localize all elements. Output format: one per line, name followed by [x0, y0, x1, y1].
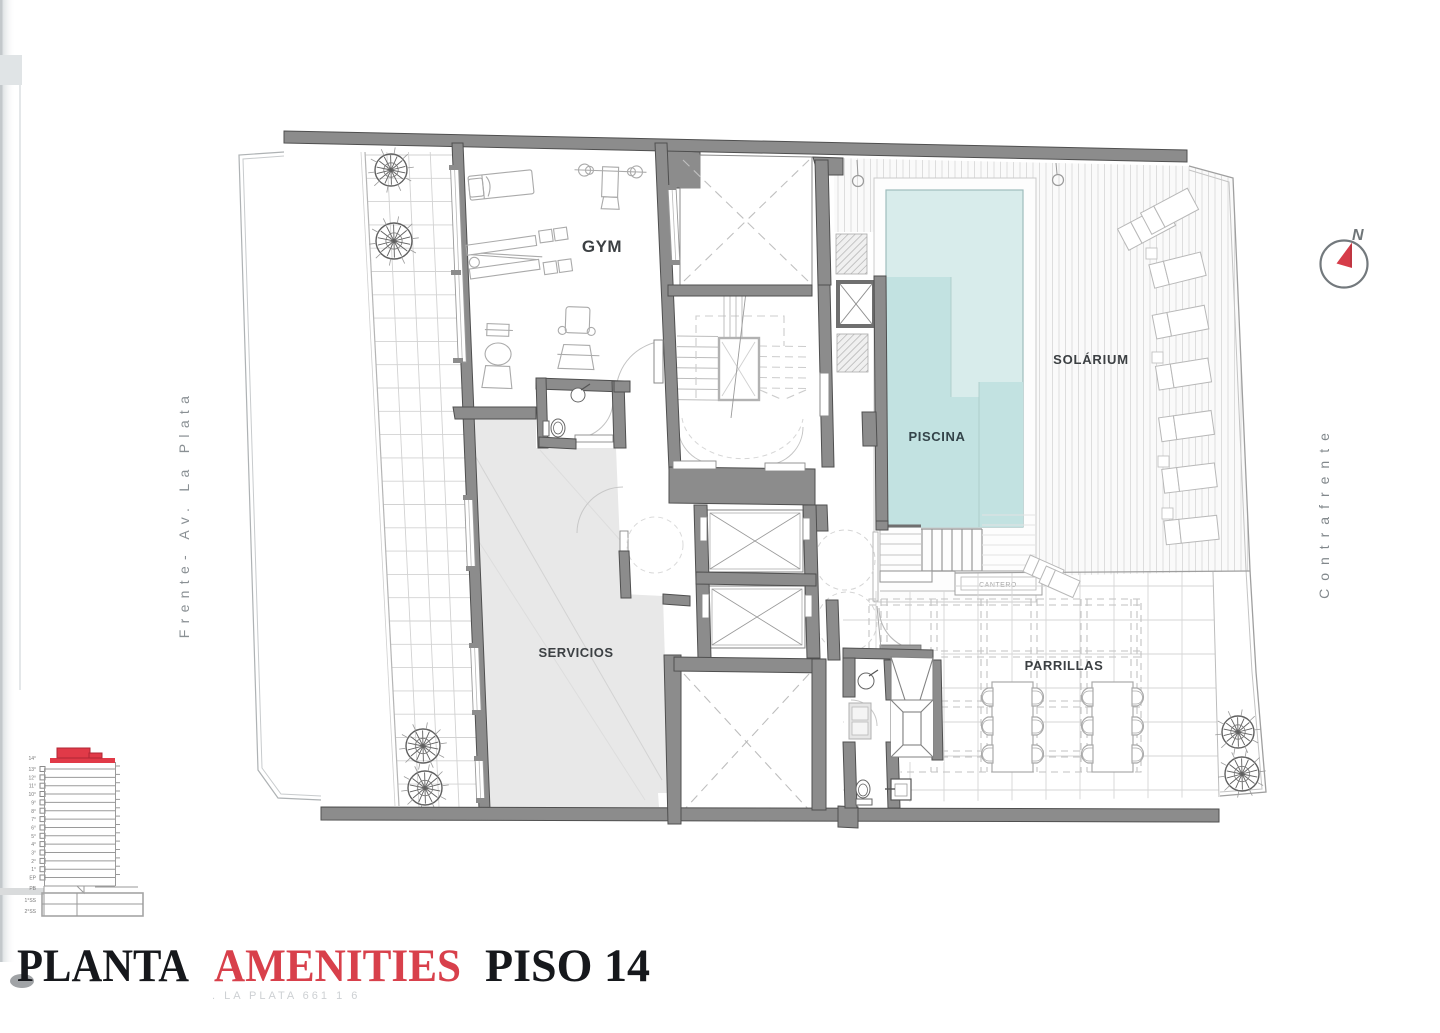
svg-text:2°SS: 2°SS [25, 909, 37, 915]
svg-text:EP: EP [29, 876, 36, 882]
svg-text:4°: 4° [31, 842, 36, 848]
svg-text:N: N [1352, 227, 1364, 244]
svg-text:12°: 12° [28, 775, 36, 781]
svg-text:10°: 10° [28, 792, 36, 798]
svg-text:PISCINA: PISCINA [909, 429, 966, 444]
svg-text:2°: 2° [31, 859, 36, 865]
svg-text:PLANTA: PLANTA [17, 940, 189, 992]
svg-text:SOLÁRIUM: SOLÁRIUM [1053, 352, 1129, 367]
svg-text:9°: 9° [31, 800, 36, 806]
svg-text:SERVICIOS: SERVICIOS [538, 645, 613, 660]
svg-text:PARRILLAS: PARRILLAS [1025, 658, 1104, 673]
svg-text:AMENITIES: AMENITIES [214, 940, 461, 992]
svg-text:14°: 14° [28, 756, 36, 762]
svg-text:GYM: GYM [582, 237, 622, 256]
svg-text:3°: 3° [31, 851, 36, 857]
svg-text:13°: 13° [28, 767, 36, 773]
svg-text:1°: 1° [31, 867, 36, 873]
svg-text:8°: 8° [31, 809, 36, 815]
svg-text:6°: 6° [31, 826, 36, 832]
svg-text:PISO 14: PISO 14 [485, 940, 650, 992]
svg-text:PB: PB [29, 886, 36, 892]
svg-text:Contrafrente: Contrafrente [1316, 425, 1332, 599]
svg-text:7°: 7° [31, 817, 36, 823]
svg-text:CANTERO: CANTERO [979, 582, 1017, 589]
svg-text:Frente- Av. La Plata: Frente- Av. La Plata [176, 390, 192, 638]
svg-text:5°: 5° [31, 834, 36, 840]
svg-text:11°: 11° [29, 784, 36, 790]
svg-text:1°SS: 1°SS [25, 898, 37, 904]
